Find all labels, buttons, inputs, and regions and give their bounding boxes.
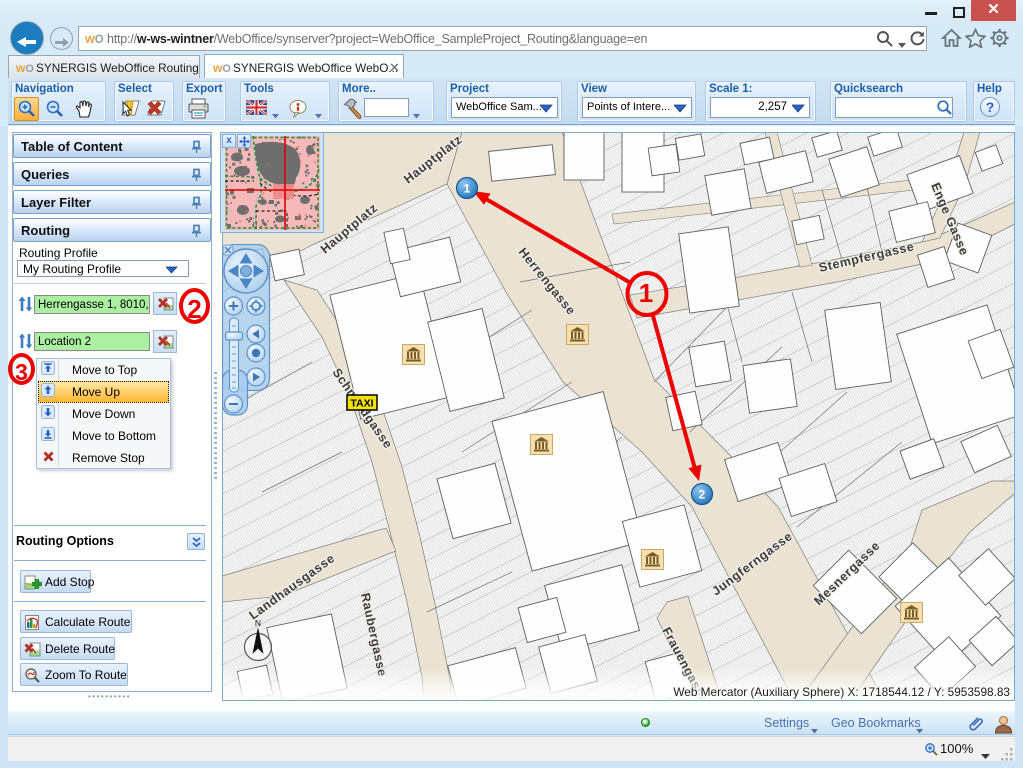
svg-text:N: N (255, 618, 261, 628)
svg-text:1: 1 (464, 182, 471, 196)
svg-text:1: 1 (639, 278, 653, 308)
svg-text:TAXI: TAXI (350, 398, 373, 410)
svg-text:Web Mercator (Auxiliary Sphere: Web Mercator (Auxiliary Sphere) X: 17185… (673, 685, 1010, 699)
svg-text:2: 2 (699, 488, 706, 502)
